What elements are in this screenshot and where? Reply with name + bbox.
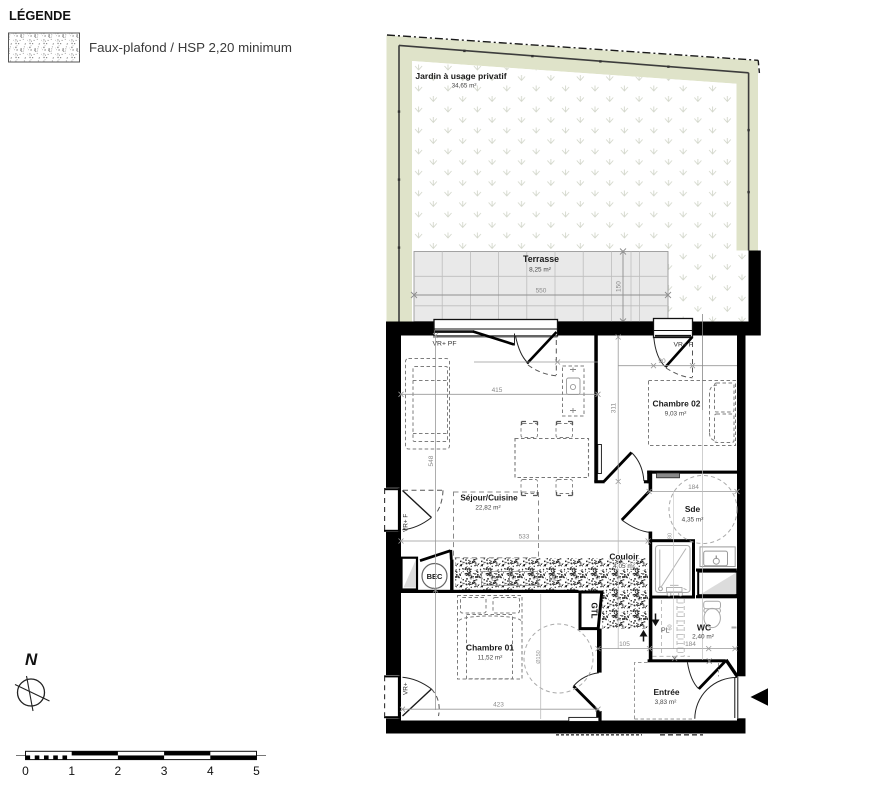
svg-text:4,35 m²: 4,35 m² bbox=[682, 517, 704, 524]
svg-text:GTL: GTL bbox=[590, 603, 599, 619]
svg-text:VR+ PF: VR+ PF bbox=[433, 341, 457, 348]
svg-text:60: 60 bbox=[668, 624, 674, 630]
svg-text:184: 184 bbox=[685, 641, 696, 648]
svg-text:550: 550 bbox=[536, 288, 547, 295]
svg-text:548: 548 bbox=[428, 455, 435, 466]
svg-text:ML: ML bbox=[548, 576, 557, 583]
svg-text:BEC: BEC bbox=[427, 572, 443, 581]
svg-text:Séjour/Cuisine: Séjour/Cuisine bbox=[460, 494, 518, 503]
svg-text:3: 3 bbox=[161, 764, 168, 778]
svg-text:0: 0 bbox=[22, 764, 29, 778]
svg-text:423: 423 bbox=[493, 702, 504, 709]
svg-text:11,52 m²: 11,52 m² bbox=[478, 655, 503, 662]
svg-text:Terrasse: Terrasse bbox=[523, 254, 559, 264]
svg-text:WC: WC bbox=[697, 623, 711, 633]
svg-text:533: 533 bbox=[519, 534, 530, 541]
svg-text:34,65 m²: 34,65 m² bbox=[452, 83, 477, 90]
svg-text:22,82 m²: 22,82 m² bbox=[475, 505, 500, 512]
svg-text:VR+ F: VR+ F bbox=[674, 342, 693, 349]
svg-text:105: 105 bbox=[619, 641, 630, 648]
svg-text:150: 150 bbox=[616, 281, 623, 292]
svg-text:VR+ F: VR+ F bbox=[403, 514, 410, 532]
svg-text:LV: LV bbox=[491, 576, 499, 583]
svg-text:80: 80 bbox=[668, 533, 674, 539]
svg-text:Couloir: Couloir bbox=[609, 552, 639, 562]
svg-text:LÉGENDE: LÉGENDE bbox=[9, 8, 71, 23]
svg-text:Jardin à usage privatif: Jardin à usage privatif bbox=[415, 71, 506, 81]
svg-text:5: 5 bbox=[253, 764, 260, 778]
svg-text:Sde: Sde bbox=[685, 504, 701, 514]
svg-text:Chambre 01: Chambre 01 bbox=[466, 643, 514, 653]
svg-text:90: 90 bbox=[658, 358, 666, 365]
svg-text:N: N bbox=[25, 650, 38, 669]
svg-text:3,83 m²: 3,83 m² bbox=[655, 699, 677, 706]
svg-text:311: 311 bbox=[611, 402, 618, 413]
svg-text:9,03 m²: 9,03 m² bbox=[665, 411, 687, 418]
svg-text:Chambre 02: Chambre 02 bbox=[653, 399, 701, 409]
svg-text:184: 184 bbox=[688, 484, 699, 491]
svg-text:4,05 m²: 4,05 m² bbox=[613, 563, 635, 570]
svg-text:8,25 m²: 8,25 m² bbox=[529, 267, 551, 274]
svg-text:VR+: VR+ bbox=[403, 682, 410, 695]
svg-text:Faux-plafond / HSP 2,20 minimu: Faux-plafond / HSP 2,20 minimum bbox=[89, 40, 292, 55]
svg-text:Entrée: Entrée bbox=[653, 687, 679, 697]
svg-text:4: 4 bbox=[207, 764, 214, 778]
svg-text:2: 2 bbox=[115, 764, 122, 778]
svg-text:1: 1 bbox=[68, 764, 75, 778]
svg-text:2,40 m²: 2,40 m² bbox=[692, 634, 714, 641]
svg-text:415: 415 bbox=[492, 387, 503, 394]
